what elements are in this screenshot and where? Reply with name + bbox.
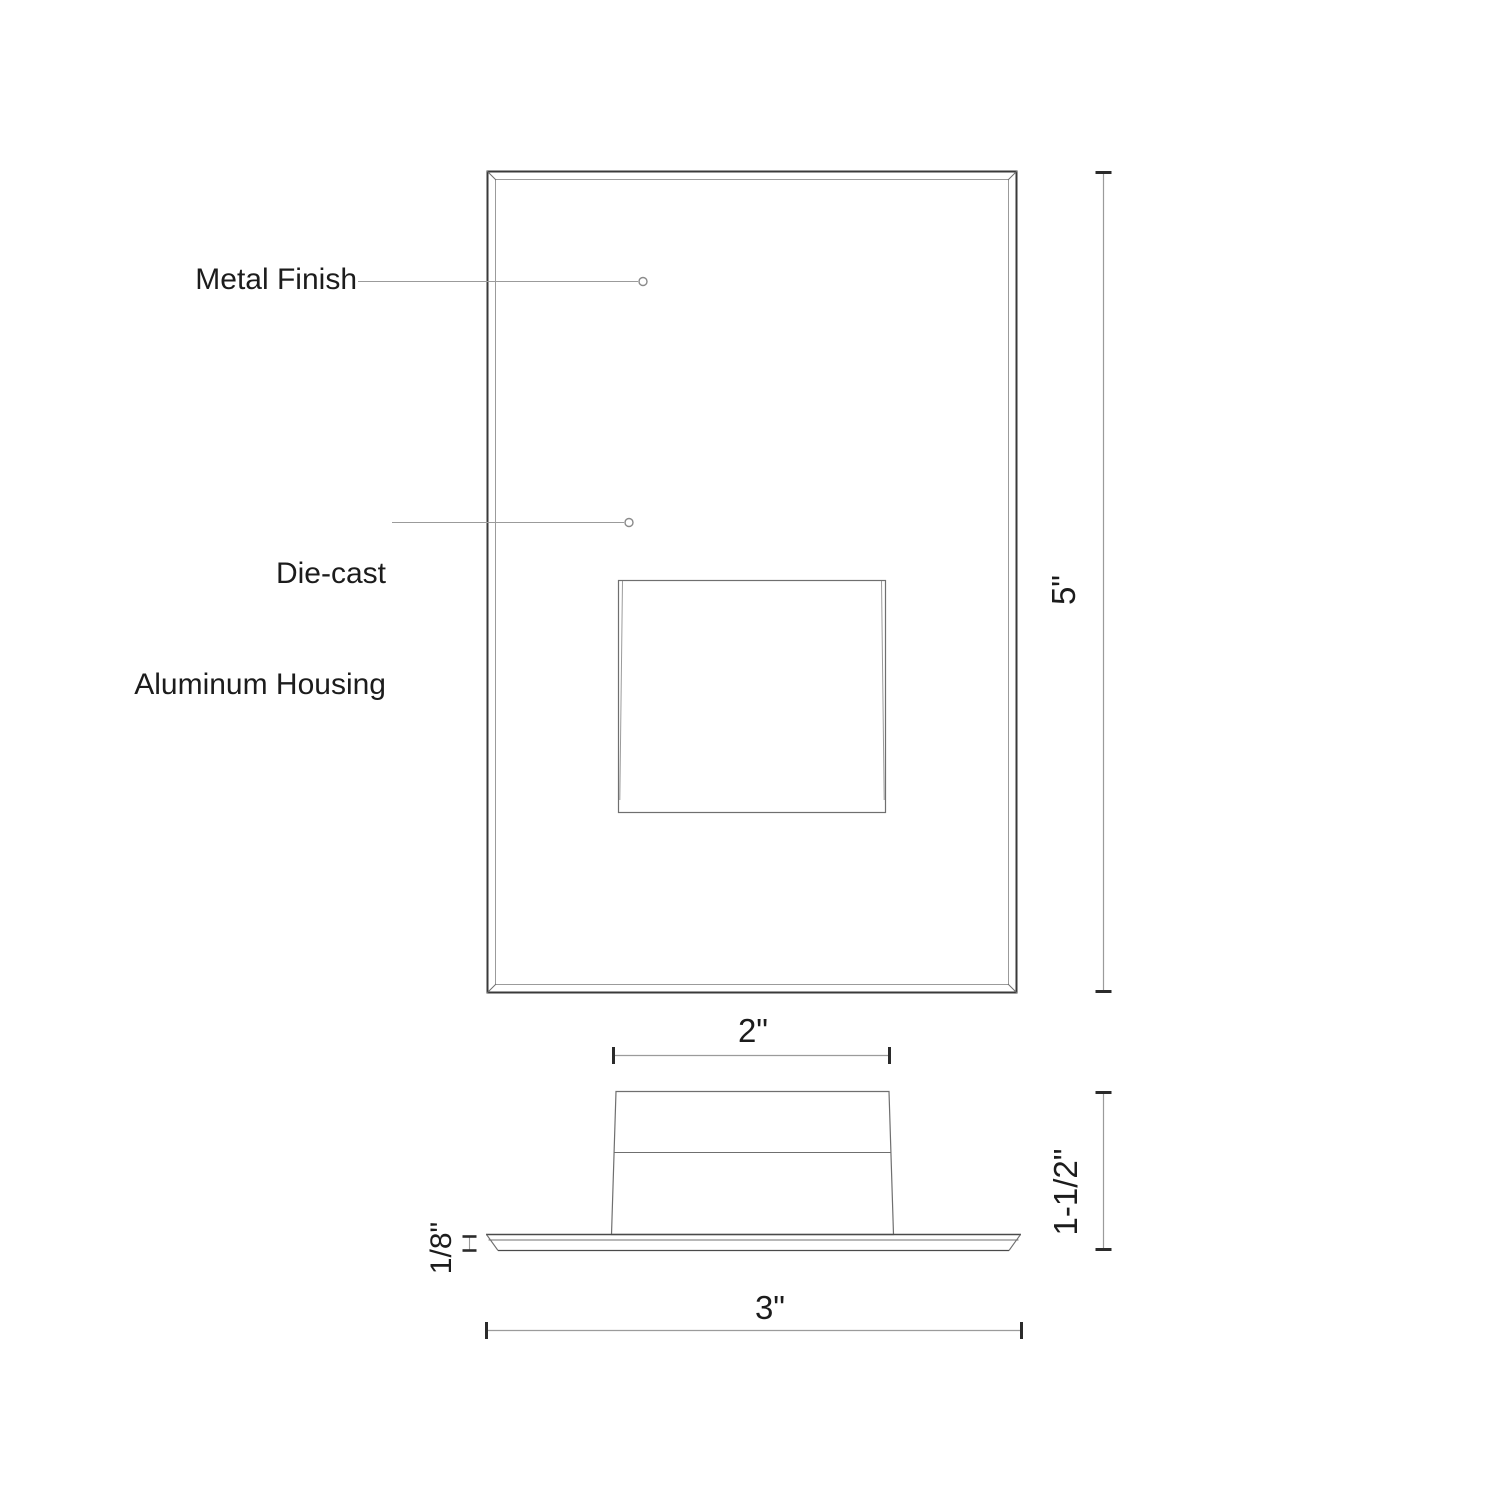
dim-5in-label: 5" [1044, 510, 1084, 670]
dim-1half-label: 1-1/2" [1046, 1112, 1086, 1272]
metal-finish-label: Metal Finish [195, 261, 357, 298]
housing-square-inner-edges [620, 581, 884, 800]
metal-finish-leader-dot [639, 278, 647, 286]
die-cast-label-line2: Aluminum Housing [134, 666, 386, 703]
side-view [486, 1092, 1021, 1251]
dim-3in-label: 3" [710, 1288, 830, 1328]
callout-leaders [358, 278, 647, 527]
dim-plate-thickness [463, 1236, 477, 1251]
front-view [487, 171, 1017, 993]
dim-side-height [1096, 1092, 1112, 1250]
faceplate-corner-chamfers [487, 171, 1017, 993]
die-cast-label-line1: Die-cast [134, 555, 386, 592]
die-cast-leader-dot [625, 519, 633, 527]
dim-front-height [1096, 172, 1112, 992]
housing-square [619, 581, 886, 813]
faceplate-outer-rect [488, 172, 1017, 993]
housing-profile [612, 1092, 894, 1235]
dim-eighth-label: 1/8" [422, 1168, 462, 1328]
dimension-drawing: Metal Finish Die-cast Aluminum Housing 5… [0, 0, 1500, 1500]
backplate-end-chamfers [487, 1235, 1021, 1251]
dim-2in-label: 2" [693, 1011, 813, 1051]
die-cast-label: Die-cast Aluminum Housing [134, 481, 386, 777]
faceplate-inner-rect [496, 180, 1009, 985]
